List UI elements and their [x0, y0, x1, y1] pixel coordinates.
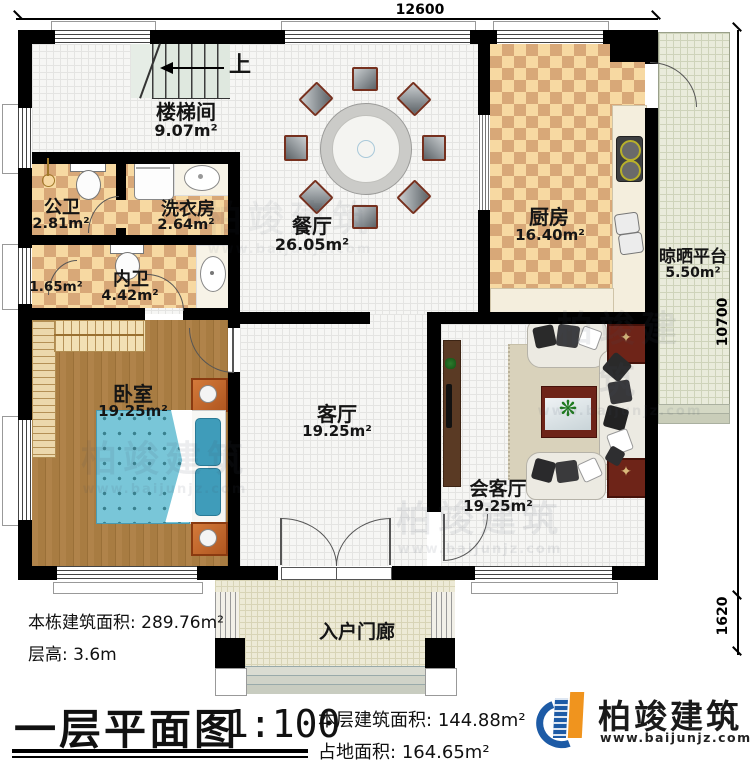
footprint-row: 占地面积: 164.65m² [318, 738, 490, 764]
wall-bedroom-east-a [228, 308, 240, 328]
room-name-stairwell: 楼梯间 [156, 101, 216, 123]
wall-bedroom-east-b [228, 372, 240, 580]
window [475, 566, 612, 580]
building-area-value: 289.76m² [141, 613, 224, 633]
wall-kitchen-west-upper [478, 44, 490, 115]
porch-pillar-left [215, 638, 245, 668]
window [285, 30, 470, 44]
room-name-platform: 晾晒平台 [659, 248, 727, 267]
floor-height-value: 3.6m [73, 645, 117, 665]
window [57, 566, 197, 580]
entry-door-leaf-left [280, 518, 282, 565]
dining-chair [352, 67, 378, 91]
top-dimension-line [16, 18, 658, 20]
dining-table-center [357, 140, 375, 158]
living-floor [240, 314, 427, 566]
kitchen-counter-south [490, 288, 614, 314]
title-underline-2 [12, 756, 308, 758]
pillar-base [215, 668, 247, 696]
room-name-public-bath: 公卫 [44, 198, 80, 218]
floor-drain [42, 174, 55, 187]
kitchen-sink-bowl [618, 231, 645, 255]
window [18, 108, 32, 168]
right-dimension-text: 10700 [715, 292, 731, 352]
floor-area-row: 本层建筑面积: 144.88m² [318, 706, 526, 732]
room-name-porch: 入户门廊 [319, 622, 395, 643]
stove-burner [620, 140, 641, 161]
room-name-master-bath: 内卫 [113, 270, 149, 290]
top-dimension-text: 12600 [378, 2, 462, 18]
room-area-public-bath: 2.81m² [32, 217, 89, 233]
window-sill [471, 582, 618, 594]
washing-machine [134, 160, 174, 200]
window [18, 248, 32, 304]
wall-right-upper [645, 30, 658, 64]
stove-burner [620, 160, 641, 181]
side-table-inlay: ✦ [620, 465, 632, 480]
sofa-cushion [555, 460, 580, 484]
nightstand-knob [199, 529, 217, 547]
footprint-label: 占地面积: [318, 742, 396, 763]
wall-bath-divider [116, 164, 126, 200]
wall-kitchen-west-lower [478, 210, 490, 312]
porch-dimension-text: 1620 [715, 593, 731, 639]
wall-right-main [645, 108, 658, 580]
wall-dining-living [240, 312, 370, 324]
company-logo: 柏竣建筑 www.baijunjz.com [534, 682, 746, 754]
door-leaf-bedroom [232, 328, 234, 372]
room-area-master-bath: 4.42m² [101, 289, 158, 305]
dining-chair [352, 205, 378, 229]
window [18, 420, 32, 520]
nightstand-knob [199, 385, 217, 403]
porch-front-step [243, 684, 427, 694]
cabinet-plant [445, 358, 456, 369]
floor-area-label: 本层建筑面积: [318, 710, 432, 731]
wall-bath-mid [18, 235, 228, 245]
window [497, 30, 603, 44]
pillow [195, 418, 221, 466]
wall-reception-north [427, 312, 658, 324]
bath-sink-drain [210, 271, 214, 275]
footprint-value: 164.65m² [402, 742, 490, 763]
room-area-stairwell: 9.07m² [154, 122, 217, 140]
room-name-dining: 餐厅 [292, 215, 332, 237]
window-sill [53, 582, 203, 594]
wall-living-reception [427, 324, 441, 512]
dining-chair [284, 135, 308, 161]
entry-door-panel [336, 567, 392, 580]
wardrobe-top [54, 320, 146, 352]
room-area-dining: 26.05m² [275, 236, 349, 254]
floor-height-label: 层高: [28, 645, 68, 665]
wall-bath-east [228, 152, 240, 325]
sliding-door [479, 115, 489, 210]
wardrobe-rod [54, 334, 144, 336]
floor-area-value: 144.88m² [438, 710, 526, 731]
floor-plan-canvas: 12600 10700 1620 [0, 0, 750, 768]
room-area-living: 19.25m² [302, 423, 372, 440]
room-name-kitchen: 厨房 [529, 206, 569, 228]
door-leaf-reception [443, 514, 445, 560]
side-table-inlay: ✦ [620, 331, 632, 346]
laundry-sink-drain [198, 174, 203, 179]
coffee-table-plant: ❋ [559, 398, 577, 422]
pillow [195, 468, 221, 516]
entry-door-panel [281, 567, 337, 580]
toilet-bowl [76, 170, 101, 200]
room-area-kitchen: 16.40m² [515, 227, 585, 244]
washing-machine-panel [136, 167, 170, 169]
wall-bedroom-north-b [183, 308, 228, 320]
room-area-bedroom: 19.25m² [98, 403, 168, 420]
drawing-title: 一层平面图 [14, 696, 239, 757]
stair-up-label: 上 [229, 54, 251, 78]
floor-drain-hose [47, 158, 49, 176]
wardrobe-left [32, 320, 56, 458]
room-area-laundry: 2.64m² [157, 218, 214, 234]
wall-bedroom-north-a [18, 308, 145, 320]
right-dimension-line [737, 30, 739, 655]
logo-building-blue-icon [553, 698, 568, 738]
wall-bath-north [18, 152, 240, 164]
sofa-cushion [556, 324, 581, 349]
stair-direction-line [172, 67, 224, 69]
porch-side-step-right [431, 592, 455, 638]
room-area-reception: 19.25m² [463, 498, 533, 515]
building-area-label: 本栋建筑面积: [28, 613, 136, 633]
building-area-row: 本栋建筑面积: 289.76m² [28, 608, 224, 633]
entry-door-leaf-right [389, 518, 391, 565]
logo-building-orange-icon [568, 692, 584, 738]
logo-website: www.baijunjz.com [600, 730, 750, 745]
sofa-cushion [607, 379, 632, 404]
floor-height-row: 层高: 3.6m [28, 640, 117, 665]
window [55, 30, 150, 44]
porch-pillar-right [425, 638, 455, 668]
title-underline-1 [12, 749, 308, 753]
pillar-base [425, 668, 457, 696]
stair-direction-arrowhead [160, 62, 173, 74]
dining-chair [422, 135, 446, 161]
platform-step [658, 413, 730, 424]
sofa-cushion [532, 324, 557, 349]
tv-screen [446, 384, 452, 428]
room-area-closet: 1.65m² [29, 280, 82, 295]
room-area-platform: 5.50m² [665, 266, 720, 281]
